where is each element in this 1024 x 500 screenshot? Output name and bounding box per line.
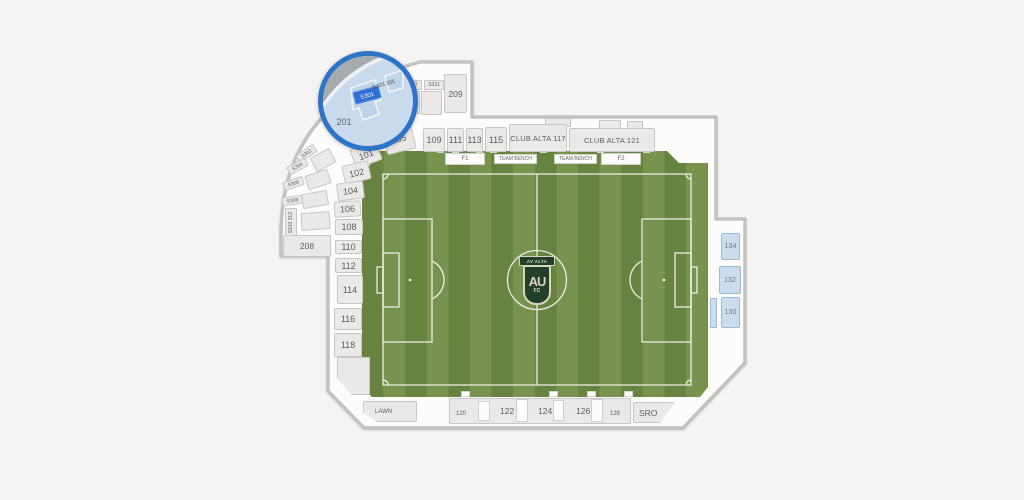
section-130[interactable]: 130 — [721, 297, 740, 328]
section-132[interactable]: 132 — [719, 266, 741, 294]
field-box-f1[interactable]: F1 — [445, 153, 485, 165]
team-bench-2: TEAM BENCH — [554, 154, 597, 164]
section-block[interactable] — [710, 298, 717, 328]
vomitory-marker — [587, 391, 596, 397]
stair-notch — [516, 399, 528, 422]
section-126[interactable]: 126 — [576, 406, 590, 416]
stair-notch — [553, 400, 564, 421]
crest-monogram: AU — [529, 276, 546, 288]
section-104[interactable]: 104 — [336, 180, 365, 201]
section-s311[interactable]: S311 — [424, 80, 444, 90]
pitch-markings — [0, 0, 1024, 500]
section-108[interactable]: 108 — [335, 219, 363, 235]
section-magnifier[interactable]: S301 S303 305 201 — [318, 51, 418, 151]
seat-map-stage: AV ALTA AU FC F1 TEAM BENCH TEAM BENCH F… — [0, 0, 1024, 500]
crest-footer: FC — [534, 288, 541, 294]
section-club-alta-121[interactable]: CLUB ALTA 121 — [569, 128, 655, 152]
section-120[interactable]: 120 — [456, 411, 466, 417]
section-s310-312[interactable]: S310 312 — [285, 208, 297, 238]
section-111[interactable]: 111 — [447, 128, 464, 152]
field-box-f2[interactable]: F2 — [601, 153, 641, 165]
section-block[interactable] — [300, 211, 330, 231]
section-134[interactable]: 134 — [721, 233, 740, 260]
section-114[interactable]: 114 — [337, 275, 363, 304]
crest-shield: AU FC — [523, 265, 551, 305]
vomitory-marker — [549, 391, 558, 397]
section-113[interactable]: 113 — [466, 128, 483, 152]
vomitory-marker — [624, 391, 633, 397]
section-124[interactable]: 124 — [538, 406, 552, 416]
section-106[interactable]: 106 — [334, 200, 362, 217]
section-club-alta-117[interactable]: CLUB ALTA 117 — [509, 124, 567, 152]
section-116[interactable]: 116 — [334, 308, 362, 330]
vomitory-marker — [461, 391, 470, 397]
section-109[interactable]: 109 — [423, 128, 445, 152]
section-112[interactable]: 112 — [335, 258, 362, 273]
team-bench-1: TEAM BENCH — [494, 154, 537, 164]
section-128[interactable]: 128 — [610, 411, 620, 417]
bottom-sections-strip[interactable]: 120 122 124 126 128 — [449, 398, 631, 424]
stair-notch — [591, 399, 603, 422]
section-115[interactable]: 115 — [485, 127, 507, 152]
section-122[interactable]: 122 — [500, 406, 514, 416]
stair-notch — [478, 401, 490, 421]
section-208[interactable]: 208 — [283, 235, 331, 257]
section-block[interactable] — [421, 91, 442, 115]
section-110[interactable]: 110 — [335, 240, 362, 254]
section-209[interactable]: 209 — [444, 74, 467, 113]
section-label: S310 312 — [288, 212, 294, 233]
section-201-label[interactable]: 201 — [336, 117, 351, 127]
section-118[interactable]: 118 — [334, 333, 362, 357]
club-crest: AV ALTA AU FC — [519, 256, 555, 308]
